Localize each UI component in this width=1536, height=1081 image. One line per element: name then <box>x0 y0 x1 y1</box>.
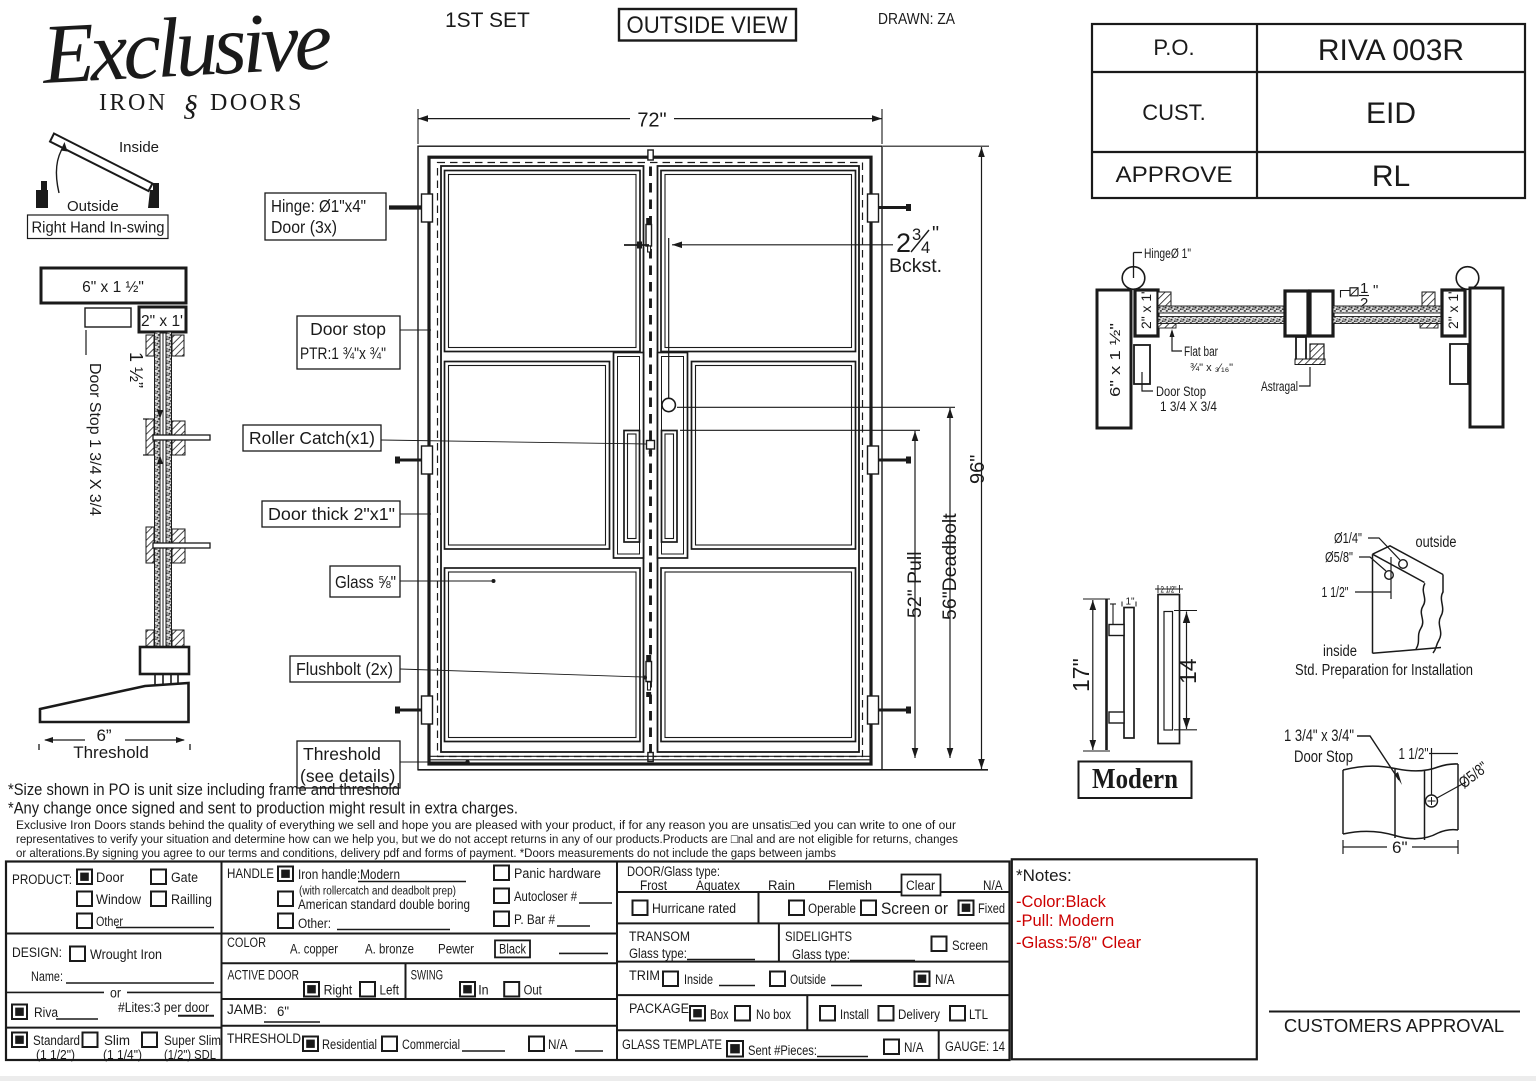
svg-text:Install: Install <box>840 1007 869 1022</box>
svg-text:Ø5/8": Ø5/8" <box>1325 550 1353 566</box>
svg-text:Window: Window <box>96 892 141 907</box>
svg-text:Exclusive Iron Doors stands be: Exclusive Iron Doors stands behind the q… <box>16 818 956 832</box>
svg-text:96": 96" <box>967 455 989 484</box>
svg-text:(1 1/2"): (1 1/2") <box>36 1048 75 1062</box>
svg-text:1 1/2": 1 1/2" <box>1322 585 1349 601</box>
svg-text:Hurricane rated: Hurricane rated <box>652 901 736 916</box>
svg-text:inside: inside <box>1323 643 1357 660</box>
svg-text:(1 1/4"): (1 1/4") <box>103 1048 142 1062</box>
svg-text:(1/2") SDL: (1/2") SDL <box>164 1048 216 1062</box>
svg-text:ACTIVE DOOR: ACTIVE DOOR <box>228 967 300 982</box>
svg-text:*Notes:: *Notes: <box>1016 866 1072 885</box>
svg-text:Astragal: Astragal <box>1261 379 1298 394</box>
svg-text:Hinge: Ø1"x4": Hinge: Ø1"x4" <box>271 196 366 216</box>
svg-text:HANDLE: HANDLE <box>227 866 274 881</box>
svg-text:PACKAGE: PACKAGE <box>629 1001 689 1016</box>
svg-text:Panic hardware: Panic hardware <box>514 866 601 881</box>
svg-text:SIDELIGHTS: SIDELIGHTS <box>785 929 852 944</box>
svg-text:Screen: Screen <box>952 938 988 953</box>
svg-text:Door Stop 1 3/4 X 3/4: Door Stop 1 3/4 X 3/4 <box>86 363 103 516</box>
svg-text:Standard: Standard <box>33 1033 80 1048</box>
svg-text:Pewter: Pewter <box>438 942 474 957</box>
svg-text:A. copper: A. copper <box>290 942 338 957</box>
svg-text:6": 6" <box>277 1004 289 1019</box>
svg-text:72": 72" <box>637 110 666 132</box>
svg-text:Autocloser #: Autocloser # <box>514 889 577 904</box>
svg-text:Door: Door <box>96 870 124 885</box>
svg-text:Clear: Clear <box>906 878 935 893</box>
svg-text:RIVA 003R: RIVA 003R <box>1318 34 1464 67</box>
svg-text:1ST SET: 1ST SET <box>445 9 530 32</box>
svg-text:Sent #Pieces:: Sent #Pieces: <box>748 1043 817 1058</box>
svg-text:Screen or: Screen or <box>881 900 948 918</box>
svg-text:Exclusive: Exclusive <box>39 0 332 102</box>
svg-text:Aquatex: Aquatex <box>696 878 740 893</box>
svg-text:56"Deadbolt: 56"Deadbolt <box>939 513 961 620</box>
svg-text:Modern: Modern <box>1092 763 1178 795</box>
svg-text:Other:: Other: <box>298 916 331 931</box>
svg-text:Slim: Slim <box>104 1033 130 1048</box>
svg-text:Glass ⅝": Glass ⅝" <box>335 572 396 592</box>
svg-text:P.O.: P.O. <box>1153 35 1194 60</box>
svg-text:1 3/4" x 3/4": 1 3/4" x 3/4" <box>1284 726 1354 745</box>
svg-text:Bckst.: Bckst. <box>889 255 942 277</box>
svg-text:outside: outside <box>1416 534 1457 551</box>
svg-text:1": 1" <box>1126 597 1136 608</box>
svg-text:Operable: Operable <box>808 901 856 916</box>
svg-text:APPROVE: APPROVE <box>1116 162 1233 187</box>
svg-text:Inside: Inside <box>684 972 713 987</box>
svg-text:COLOR: COLOR <box>227 935 266 950</box>
svg-text:RL: RL <box>1372 160 1410 193</box>
svg-text:Black: Black <box>499 942 526 957</box>
svg-text:Out: Out <box>524 983 542 998</box>
svg-text:-Color:Black: -Color:Black <box>1016 893 1107 911</box>
svg-text:IRON: IRON <box>99 90 168 116</box>
svg-text:CUST.: CUST. <box>1142 100 1206 125</box>
svg-text:Super Slim: Super Slim <box>164 1033 221 1048</box>
svg-text:": " <box>932 223 939 245</box>
svg-text:TRIM: TRIM <box>629 968 660 983</box>
svg-text:(with rollercatch and deadbolt: (with rollercatch and deadbolt prep) <box>299 886 456 898</box>
svg-text:-Glass:5/8" Clear: -Glass:5/8" Clear <box>1016 934 1142 952</box>
svg-text:EID: EID <box>1366 97 1416 130</box>
svg-text:": " <box>1373 282 1378 299</box>
svg-text:Box: Box <box>710 1007 729 1022</box>
svg-text:6" x 1 ½": 6" x 1 ½" <box>82 279 144 296</box>
svg-text:6": 6" <box>1392 838 1408 857</box>
svg-text:1 3/4 X 3/4: 1 3/4 X 3/4 <box>1160 399 1217 414</box>
svg-text:Glass type:: Glass type: <box>792 947 850 962</box>
svg-text:JAMB:: JAMB: <box>227 1002 267 1017</box>
svg-text:Right: Right <box>324 983 353 998</box>
svg-text:LTL: LTL <box>969 1007 988 1022</box>
svg-text:N/A: N/A <box>548 1037 568 1052</box>
svg-text:Door stop: Door stop <box>310 319 386 339</box>
svg-text:DESIGN:: DESIGN: <box>12 945 62 960</box>
svg-text:GLASS TEMPLATE: GLASS TEMPLATE <box>622 1037 722 1052</box>
svg-text:Door Stop: Door Stop <box>1156 384 1206 399</box>
svg-text:-Pull: Modern: -Pull: Modern <box>1016 912 1114 930</box>
svg-text:Frost: Frost <box>640 878 667 893</box>
svg-text:1 ½”: 1 ½” <box>126 352 146 388</box>
svg-text:Residential: Residential <box>322 1037 377 1052</box>
svg-text:Wrought Iron: Wrought Iron <box>90 947 162 962</box>
svg-text:Iron handle:Modern: Iron handle:Modern <box>298 867 400 882</box>
svg-text:52" Pull: 52" Pull <box>904 551 926 618</box>
svg-text:§: § <box>183 89 198 122</box>
svg-text:PTR:1 ¾"x ¾": PTR:1 ¾"x ¾" <box>300 344 386 363</box>
svg-text:DOORS: DOORS <box>210 90 304 116</box>
svg-text:THRESHOLD: THRESHOLD <box>227 1031 301 1046</box>
svg-text:2" x 1': 2" x 1' <box>141 313 183 330</box>
svg-text:GAUGE: 14: GAUGE: 14 <box>945 1039 1005 1054</box>
svg-text:DOOR/Glass type:: DOOR/Glass type: <box>627 864 720 879</box>
svg-text:or alterations.By signing you: or alterations.By signing you agree to o… <box>16 846 836 860</box>
svg-text:#Lites:3 per door: #Lites:3 per door <box>118 1000 209 1015</box>
svg-text:Right Hand In-swing: Right Hand In-swing <box>32 220 165 237</box>
svg-text:Delivery: Delivery <box>898 1007 940 1022</box>
svg-text:Left: Left <box>380 983 400 998</box>
svg-text:2 1/2": 2 1/2" <box>1161 585 1177 595</box>
svg-text:HingeØ 1": HingeØ 1" <box>1144 246 1191 261</box>
svg-text:Door Stop: Door Stop <box>1294 747 1353 766</box>
svg-text:¾" x ₃⁄₁₆": ¾" x ₃⁄₁₆" <box>1190 362 1233 374</box>
svg-text:Inside: Inside <box>119 139 159 156</box>
svg-text:Name:: Name: <box>31 969 63 984</box>
svg-text:1 1/2": 1 1/2" <box>1399 746 1429 763</box>
svg-text:17": 17" <box>1068 658 1094 692</box>
svg-text:CUSTOMERS APPROVAL: CUSTOMERS APPROVAL <box>1284 1015 1504 1036</box>
svg-text:N/A: N/A <box>904 1040 924 1055</box>
svg-text:2" x 1": 2" x 1" <box>1445 289 1461 329</box>
svg-text:P. Bar #: P. Bar # <box>514 912 555 927</box>
svg-text:DRAWN: ZA: DRAWN: ZA <box>878 11 956 28</box>
svg-text:No box: No box <box>756 1007 791 1022</box>
svg-text:6" x 1 ½": 6" x 1 ½" <box>1107 323 1124 397</box>
svg-text:14: 14 <box>1175 658 1201 684</box>
svg-text:Gate: Gate <box>171 870 198 885</box>
svg-text:Door thick 2"x1": Door thick 2"x1" <box>268 504 395 524</box>
svg-text:Threshold: Threshold <box>303 744 381 764</box>
svg-text:2" x 1": 2" x 1" <box>1138 289 1154 329</box>
svg-text:Ø1/4": Ø1/4" <box>1334 531 1362 547</box>
svg-text:representatives to verify your: representatives to verify your situation… <box>16 832 958 846</box>
svg-text:Fixed: Fixed <box>978 901 1005 916</box>
svg-text:Roller Catch(x1): Roller Catch(x1) <box>249 428 375 448</box>
svg-text:N/A: N/A <box>983 878 1003 893</box>
svg-text:Glass type:: Glass type: <box>629 946 687 961</box>
svg-text:Flemish: Flemish <box>828 878 872 893</box>
svg-text:A. bronze: A. bronze <box>365 942 414 957</box>
svg-text:Flushbolt (2x): Flushbolt (2x) <box>296 659 393 679</box>
svg-text:N/A: N/A <box>935 972 955 987</box>
svg-text:2: 2 <box>896 228 911 258</box>
svg-text:Railling: Railling <box>171 892 212 907</box>
svg-text:Rain: Rain <box>768 878 795 893</box>
svg-text:Std. Preparation for Installat: Std. Preparation for Installation <box>1295 662 1473 679</box>
svg-text:Outside: Outside <box>790 972 826 987</box>
svg-text:Threshold: Threshold <box>73 743 149 762</box>
svg-text:SWING: SWING <box>411 967 444 982</box>
svg-text:OUTSIDE VIEW: OUTSIDE VIEW <box>627 12 788 39</box>
svg-text:Riva: Riva <box>34 1005 58 1020</box>
svg-text:Flat bar: Flat bar <box>1184 344 1218 359</box>
svg-text:Commercial: Commercial <box>402 1037 460 1052</box>
svg-text:TRANSOM: TRANSOM <box>629 929 690 944</box>
svg-text:In: In <box>478 983 488 998</box>
svg-text:Outside: Outside <box>67 198 119 215</box>
svg-text:Door (3x): Door (3x) <box>271 217 337 237</box>
svg-text:American standard double borin: American standard double boring <box>298 897 470 912</box>
svg-text:PRODUCT:: PRODUCT: <box>12 872 72 887</box>
svg-text:*Size shown in PO is unit size: *Size shown in PO is unit size including… <box>8 781 400 799</box>
svg-text:or: or <box>110 986 121 1001</box>
svg-text:*Any change once signed and se: *Any change once signed and sent to prod… <box>8 800 518 818</box>
